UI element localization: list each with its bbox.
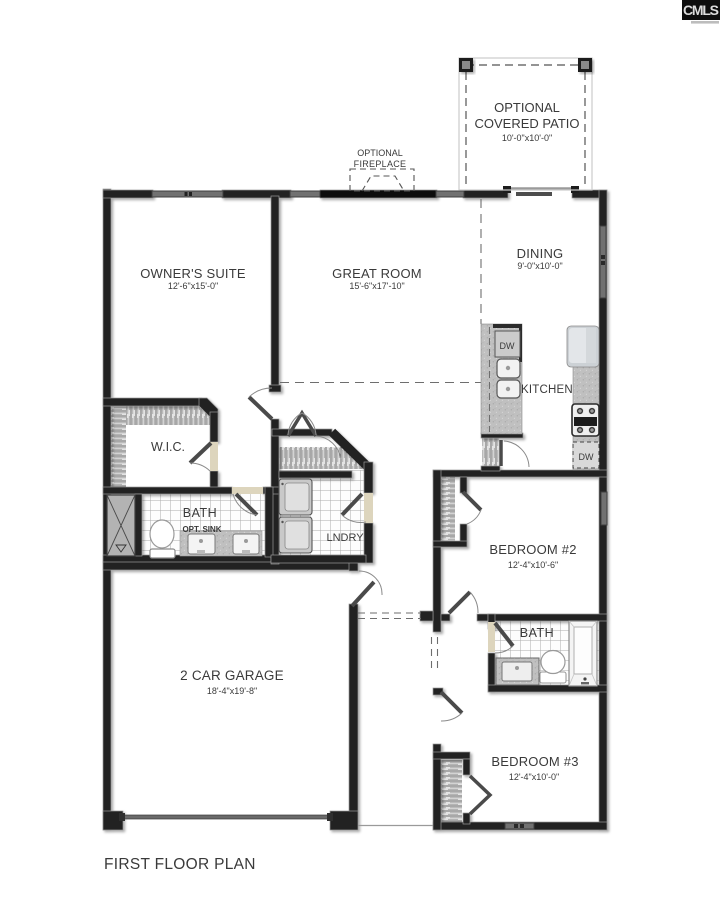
svg-text:GREAT ROOM: GREAT ROOM xyxy=(332,266,422,281)
svg-text:15'-6"x17'-10": 15'-6"x17'-10" xyxy=(349,281,404,291)
svg-text:BATH: BATH xyxy=(520,626,554,640)
svg-text:DW: DW xyxy=(579,452,594,462)
svg-text:W.I.C.: W.I.C. xyxy=(151,440,185,454)
svg-text:OWNER'S SUITE: OWNER'S SUITE xyxy=(140,266,246,281)
svg-text:BEDROOM #2: BEDROOM #2 xyxy=(489,542,576,557)
svg-text:9'-0"x10'-0": 9'-0"x10'-0" xyxy=(517,261,562,271)
svg-text:18'-4"x19'-8": 18'-4"x19'-8" xyxy=(207,686,257,696)
svg-text:CMLS: CMLS xyxy=(683,2,719,18)
svg-text:COVERED PATIO: COVERED PATIO xyxy=(475,116,580,131)
svg-text:12'-4"x10'-6": 12'-4"x10'-6" xyxy=(508,560,558,570)
svg-text:OPTIONAL: OPTIONAL xyxy=(357,148,403,158)
svg-text:DINING: DINING xyxy=(517,246,564,261)
svg-text:BEDROOM #3: BEDROOM #3 xyxy=(491,754,578,769)
svg-text:DW: DW xyxy=(500,341,515,351)
svg-text:12'-4"x10'-0": 12'-4"x10'-0" xyxy=(509,772,559,782)
svg-text:OPT. SINK: OPT. SINK xyxy=(182,525,221,534)
svg-text:LNDRY: LNDRY xyxy=(326,532,364,544)
svg-text:FIRST FLOOR PLAN: FIRST FLOOR PLAN xyxy=(104,856,256,873)
svg-text:FIREPLACE: FIREPLACE xyxy=(354,159,407,169)
svg-text:12'-6"x15'-0": 12'-6"x15'-0" xyxy=(168,281,218,291)
svg-text:2 CAR GARAGE: 2 CAR GARAGE xyxy=(180,668,284,683)
svg-text:KITCHEN: KITCHEN xyxy=(521,384,573,396)
svg-text:BATH: BATH xyxy=(183,506,217,520)
svg-text:OPTIONAL: OPTIONAL xyxy=(494,100,560,115)
svg-text:10'-0"x10'-0": 10'-0"x10'-0" xyxy=(502,133,552,143)
